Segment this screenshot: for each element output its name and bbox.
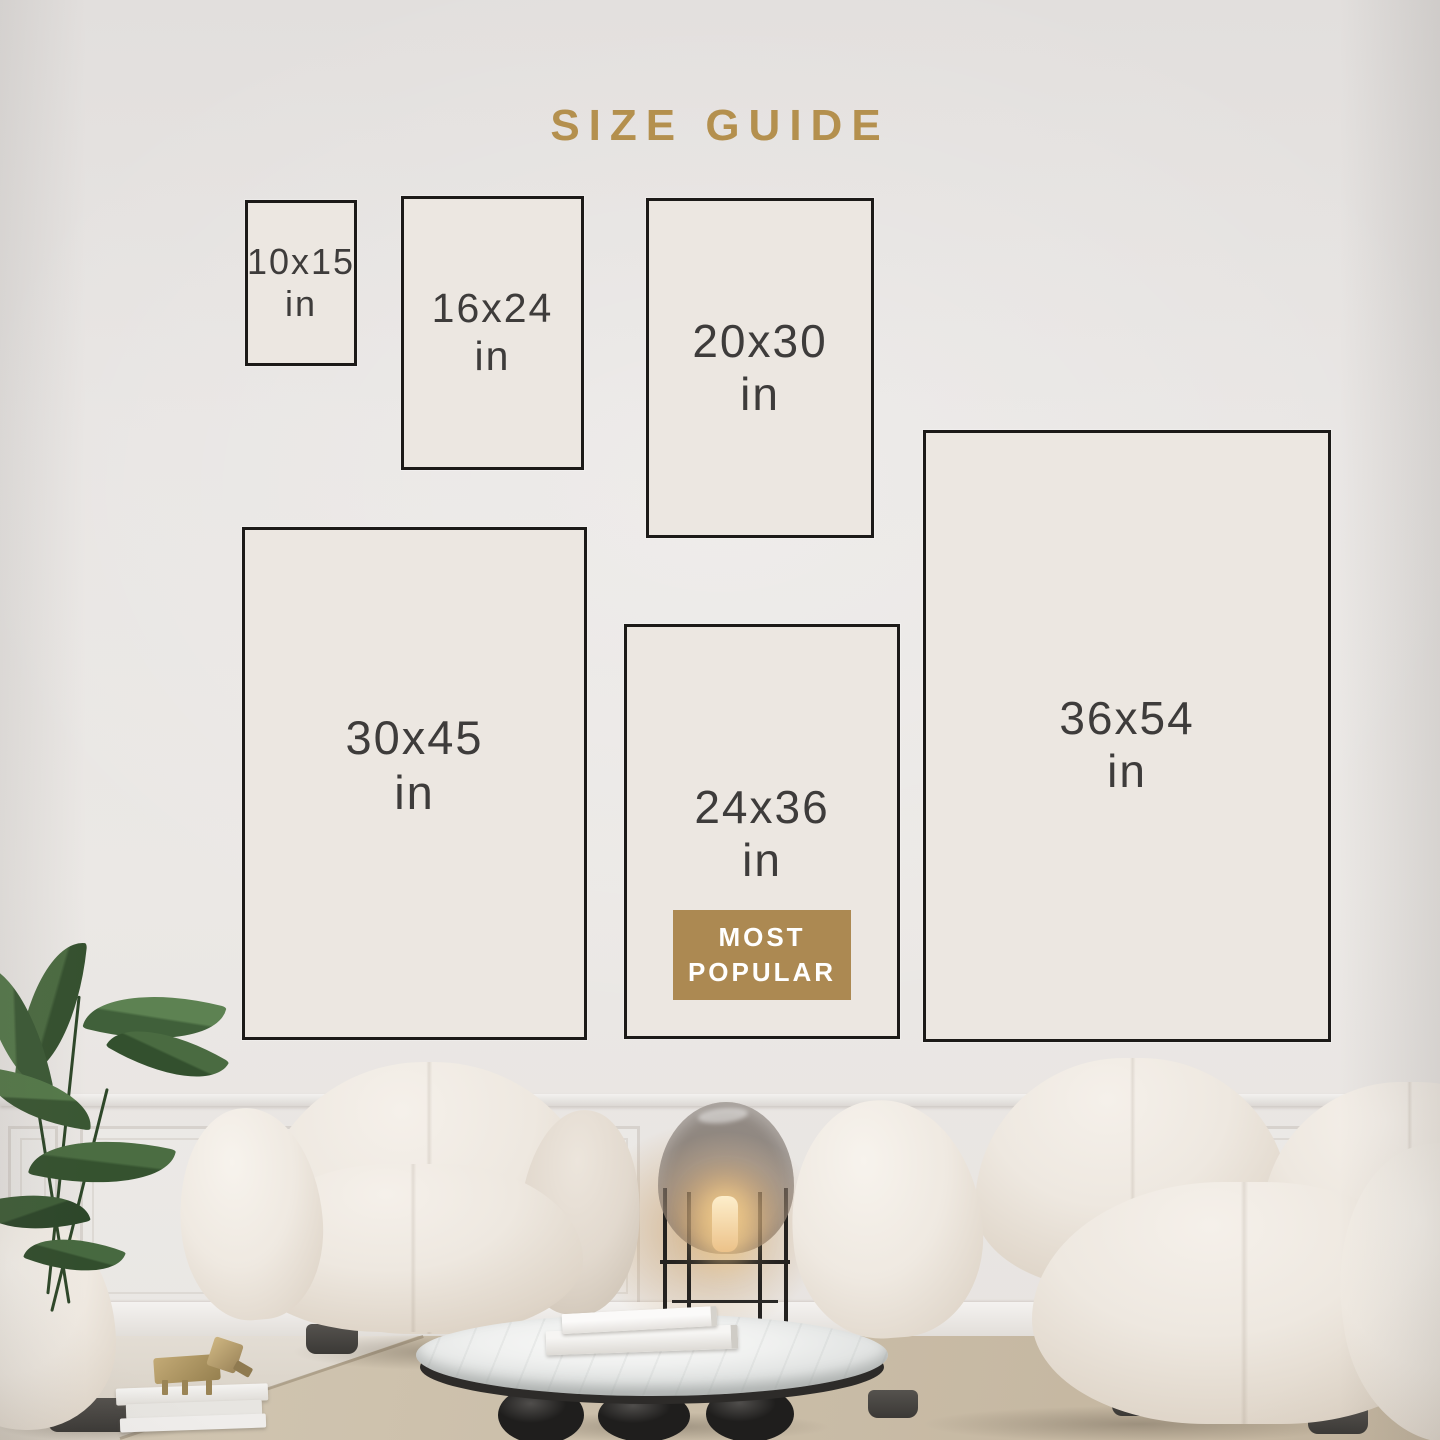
size-card-36x54: 36x54 in xyxy=(923,430,1331,1042)
size-card-content: 10x15 in xyxy=(247,241,355,325)
size-unit: in xyxy=(247,283,355,325)
size-card-16x24: 16x24 in xyxy=(401,196,584,470)
plant-leaf xyxy=(0,1178,91,1246)
figurine-snout xyxy=(233,1360,254,1378)
size-unit: in xyxy=(1059,745,1194,798)
size-label: 20x30 xyxy=(692,315,827,368)
size-label: 30x45 xyxy=(345,711,483,766)
dog-figurine xyxy=(146,1336,276,1396)
size-card-30x45: 30x45 in xyxy=(242,527,587,1040)
size-guide-title: SIZE GUIDE xyxy=(0,101,1440,151)
size-card-24x36: 24x36 in MOST POPULAR xyxy=(624,624,900,1039)
size-unit: in xyxy=(673,834,851,887)
figurine-leg xyxy=(182,1380,188,1395)
size-label: 36x54 xyxy=(1059,692,1194,745)
size-unit: in xyxy=(692,368,827,421)
lamp-stand-frame xyxy=(672,1300,778,1303)
plant-leaf xyxy=(23,1220,126,1290)
size-card-10x15: 10x15 in xyxy=(245,200,357,366)
size-guide-image: SIZE GUIDE 10x15 in 16x24 in 20x30 in 30… xyxy=(0,0,1440,1440)
figurine-leg xyxy=(162,1380,168,1395)
size-card-20x30: 20x30 in xyxy=(646,198,874,538)
size-unit: in xyxy=(345,766,483,821)
size-unit: in xyxy=(432,333,554,381)
size-card-content: 16x24 in xyxy=(432,285,554,380)
badge-line: MOST xyxy=(688,920,836,955)
size-label: 24x36 xyxy=(673,781,851,834)
size-label: 10x15 xyxy=(247,241,355,283)
size-card-content: 20x30 in xyxy=(692,315,827,422)
size-card-content: 30x45 in xyxy=(345,711,483,820)
size-card-content: 36x54 in xyxy=(1059,692,1194,799)
size-card-content: 24x36 in MOST POPULAR xyxy=(673,781,851,1000)
badge-line: POPULAR xyxy=(688,955,836,990)
most-popular-badge: MOST POPULAR xyxy=(673,910,851,1000)
lamp-stand-frame xyxy=(660,1260,790,1264)
size-label: 16x24 xyxy=(432,285,554,333)
figurine-leg xyxy=(206,1380,212,1395)
lamp-bulb-filament xyxy=(712,1196,738,1252)
